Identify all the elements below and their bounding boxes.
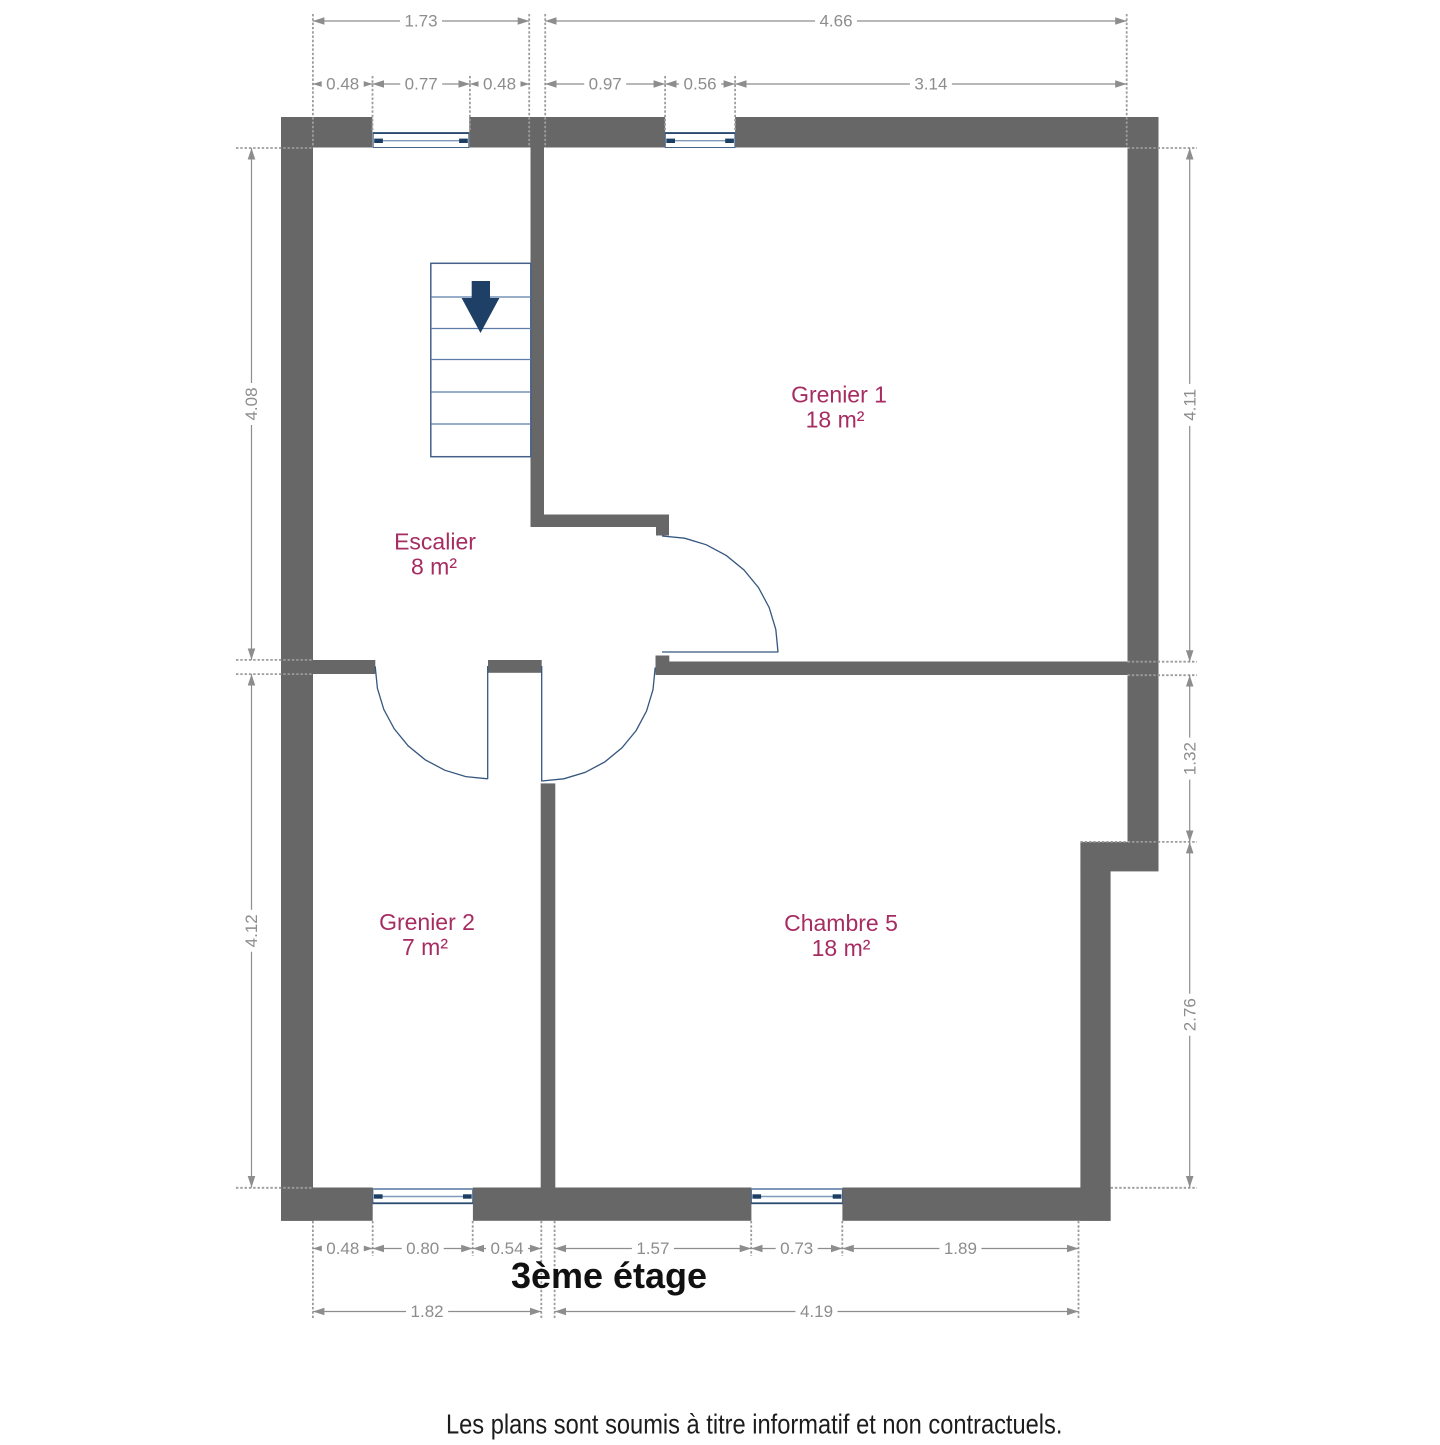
svg-text:0.80: 0.80 bbox=[406, 1239, 439, 1258]
svg-text:18 m²: 18 m² bbox=[806, 407, 865, 433]
svg-text:18 m²: 18 m² bbox=[812, 935, 871, 961]
svg-text:Grenier 2: Grenier 2 bbox=[379, 909, 475, 935]
svg-text:7 m²: 7 m² bbox=[402, 934, 448, 960]
svg-text:8 m²: 8 m² bbox=[411, 554, 457, 580]
svg-text:0.48: 0.48 bbox=[326, 1239, 359, 1258]
svg-text:3.14: 3.14 bbox=[914, 75, 947, 94]
svg-text:0.48: 0.48 bbox=[326, 75, 359, 94]
svg-text:0.56: 0.56 bbox=[684, 75, 717, 94]
svg-text:1.89: 1.89 bbox=[944, 1239, 977, 1258]
svg-text:4.11: 4.11 bbox=[1180, 389, 1199, 421]
svg-text:4.19: 4.19 bbox=[800, 1302, 833, 1321]
svg-text:4.12: 4.12 bbox=[242, 914, 261, 947]
svg-text:Escalier: Escalier bbox=[394, 529, 476, 555]
svg-text:0.73: 0.73 bbox=[780, 1239, 813, 1258]
svg-text:0.97: 0.97 bbox=[589, 75, 622, 94]
svg-text:Chambre 5: Chambre 5 bbox=[784, 910, 898, 936]
svg-text:Les plans sont soumis à titre: Les plans sont soumis à titre informatif… bbox=[446, 1410, 1062, 1440]
svg-text:2.76: 2.76 bbox=[1180, 998, 1199, 1031]
svg-text:Grenier 1: Grenier 1 bbox=[791, 382, 887, 408]
svg-text:3ème étage: 3ème étage bbox=[511, 1255, 707, 1296]
svg-text:1.82: 1.82 bbox=[411, 1302, 444, 1321]
svg-text:4.08: 4.08 bbox=[242, 387, 261, 420]
svg-text:1.32: 1.32 bbox=[1180, 742, 1199, 775]
svg-text:1.73: 1.73 bbox=[404, 12, 437, 31]
svg-text:4.66: 4.66 bbox=[819, 12, 852, 31]
svg-text:0.48: 0.48 bbox=[483, 75, 516, 94]
svg-text:0.77: 0.77 bbox=[405, 75, 438, 94]
